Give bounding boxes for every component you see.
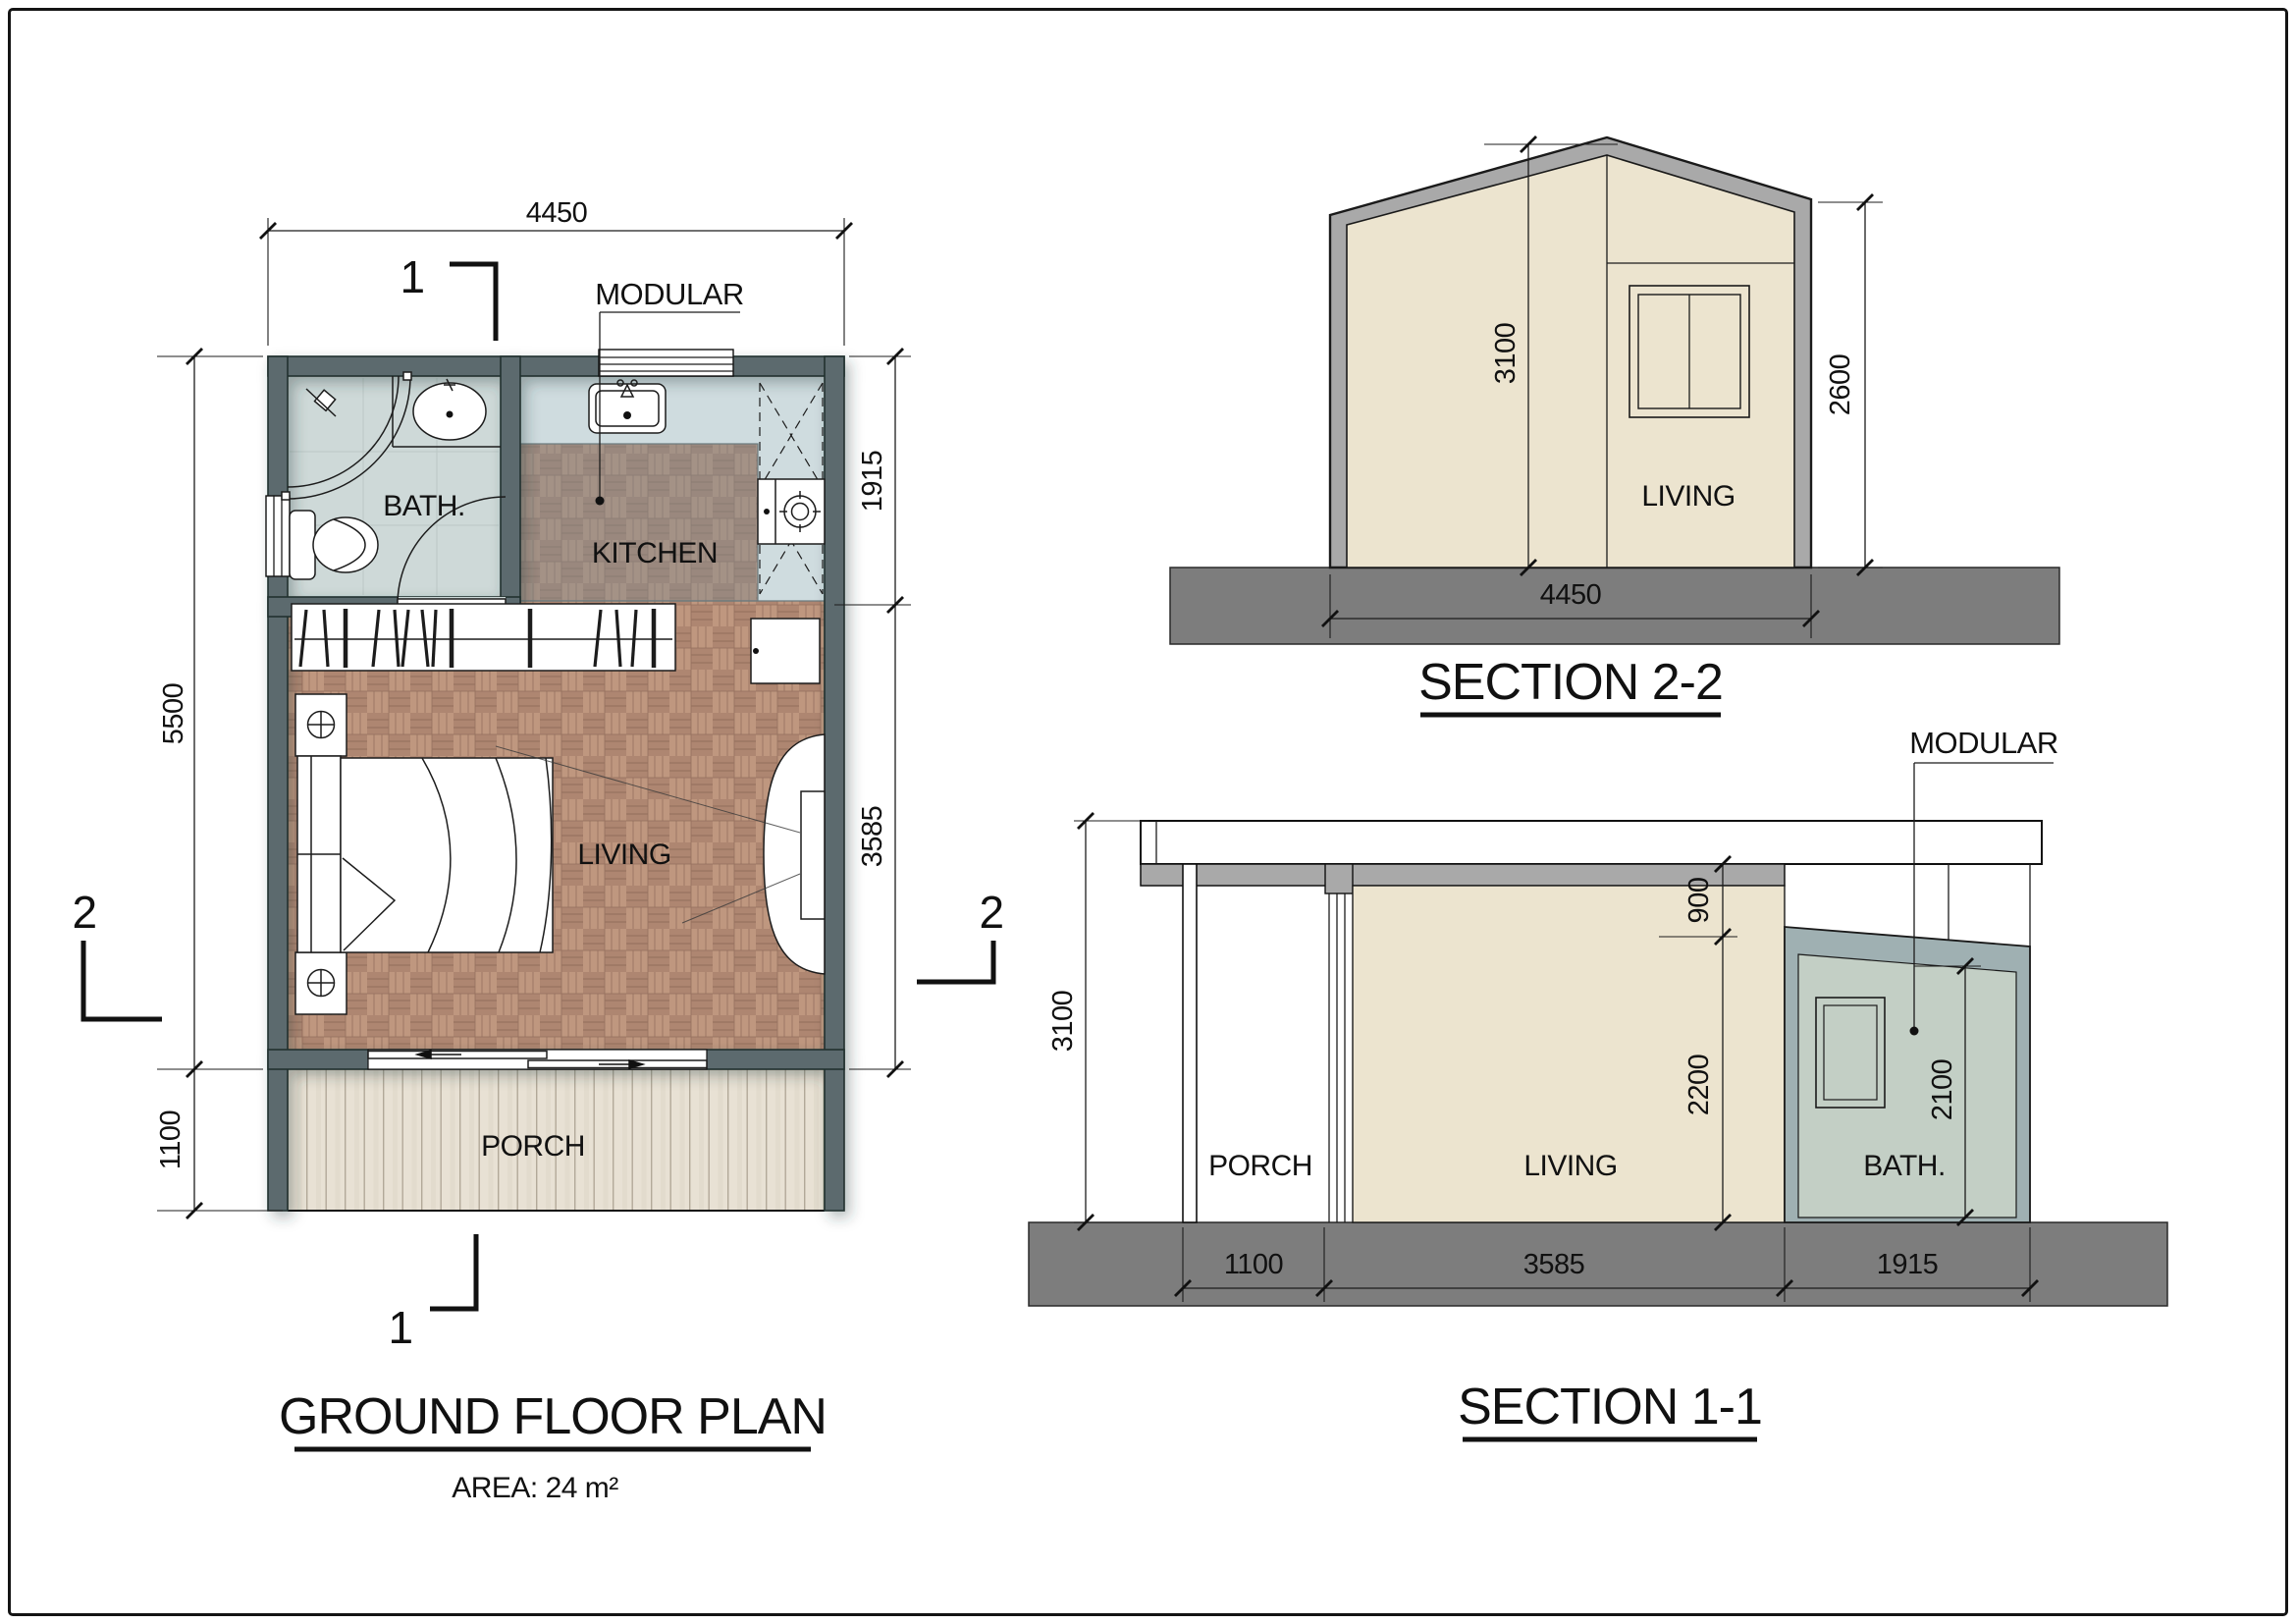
dim-2100-11: 2100 [1927,1059,1958,1121]
living-label-22: LIVING [1641,480,1735,513]
fascia-11 [1141,821,2042,864]
ground-22 [1170,568,2059,644]
living-label-11: LIVING [1523,1150,1617,1182]
section-2-2: LIVING 3100 2600 4450 SECTION 2-2 [1170,136,2059,715]
dim-3100-11: 3100 [1047,991,1079,1053]
porch-post-11 [1183,864,1197,1222]
marker-2-left: 2 [72,887,96,938]
dim-3585-plan: 3585 [857,806,888,868]
marker-2-right: 2 [979,887,1003,938]
cabinet [751,619,820,683]
wardrobe [292,604,675,671]
bath-label: BATH. [383,490,465,522]
floor-plan: BATH. KITCHEN LIVING PORCH MODULAR 4450 [72,197,1003,1504]
bath-label-11: BATH. [1863,1150,1946,1182]
door-11 [1325,864,1353,1222]
dim-2600-22: 2600 [1825,354,1856,416]
bath-window [266,496,290,576]
modular-label-11: MODULAR [1909,726,2058,760]
bed [297,756,553,952]
porch-label-11: PORCH [1208,1150,1312,1182]
ground-11 [1029,1222,2167,1306]
living-label: LIVING [577,839,670,871]
blueprint-page: BATH. KITCHEN LIVING PORCH MODULAR 4450 [0,0,2296,1624]
dim-900-11: 900 [1683,878,1715,924]
nightstand-top [295,694,347,756]
plan-title: GROUND FLOOR PLAN [279,1388,827,1445]
marker-1-top: 1 [400,251,424,302]
dim-4450: 4450 [526,197,588,229]
section-1-1: PORCH LIVING BATH. MODULAR 3100 900 [1029,726,2167,1439]
dim-1915-plan: 1915 [857,451,888,513]
dim-1100-11: 1100 [1224,1249,1283,1280]
dim-1915-11: 1915 [1877,1249,1939,1280]
dim-3585-11: 3585 [1523,1249,1585,1280]
sliding-door [368,1050,707,1069]
marker-1-bottom: 1 [388,1302,412,1353]
dim-3100-22: 3100 [1490,323,1522,385]
porch-label: PORCH [481,1130,585,1163]
dim-1100-plan: 1100 [155,1110,187,1169]
section11-title: SECTION 1-1 [1458,1379,1762,1435]
nightstand-bottom [295,952,347,1014]
window-22 [1629,286,1749,417]
stove [758,479,825,544]
kitchen-label: KITCHEN [592,537,718,569]
kitchen-window [599,350,733,376]
kitchen-tile-zone [520,444,758,601]
plan-area: AREA: 24 m² [452,1472,618,1504]
dim-5500: 5500 [158,683,189,745]
section22-title: SECTION 2-2 [1418,654,1723,711]
kitchen-sink [589,380,666,433]
architectural-drawing: BATH. KITCHEN LIVING PORCH MODULAR 4450 [0,0,2296,1624]
dim-4450-22: 4450 [1540,579,1602,611]
dim-2200-11: 2200 [1683,1055,1715,1116]
modular-label: MODULAR [595,277,744,311]
